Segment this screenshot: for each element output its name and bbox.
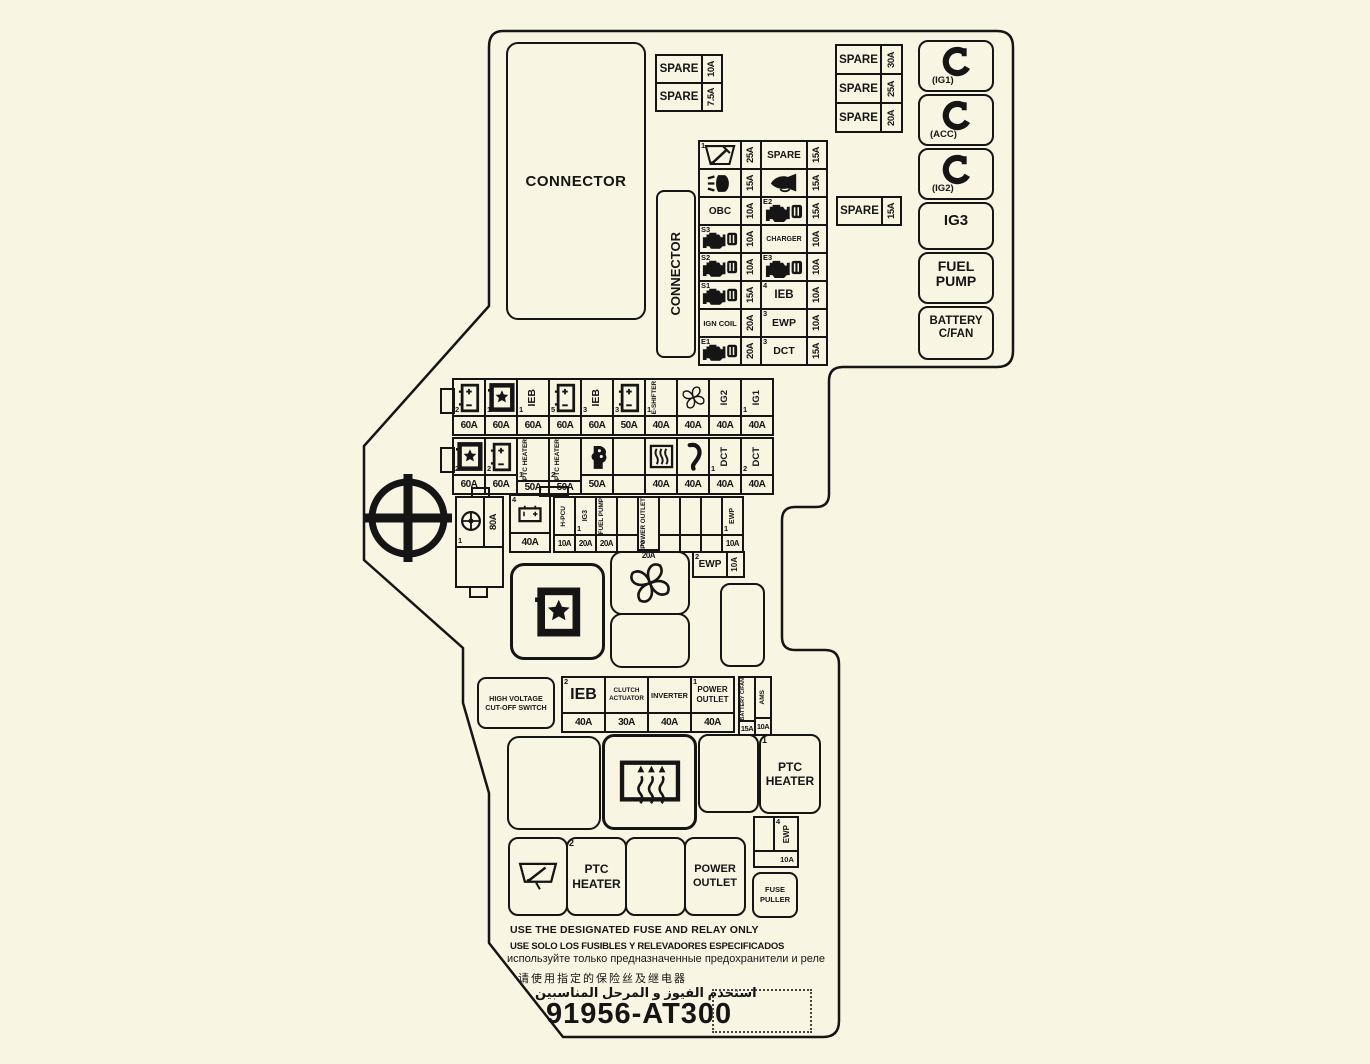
spare-amp: 15A: [881, 196, 902, 226]
spare-block-top-left: SPARE 10A SPARE 7.5A: [655, 54, 723, 112]
battery-cfan-line2: C/FAN: [939, 328, 974, 341]
battery-icon: [458, 383, 480, 413]
fuse-cell: S3: [698, 224, 742, 254]
connector-side-label: CONNECTOR: [669, 232, 683, 316]
acc-caption: (ACC): [930, 129, 957, 140]
steering-fuse-assembly: 1 80A: [455, 496, 504, 588]
spare-row: SPARE 20A: [835, 102, 903, 133]
print-area-box: [712, 989, 812, 1033]
fuse-cell: 40A: [676, 437, 710, 495]
center-grid-row: IGN COIL 20A 3 EWP 10A: [698, 308, 828, 338]
fuse-cell: 1IEB60A: [516, 378, 550, 436]
fuse-amp: 10A: [806, 308, 828, 338]
fuse-cell: 160A: [484, 378, 518, 436]
fuel-pump-line2: PUMP: [936, 274, 976, 289]
fuse-box-label: CONNECTOR CONNECTOR SPARE 10A SPARE 7.5A…: [0, 0, 1370, 1064]
fuel-pump-line1: FUEL: [938, 259, 975, 274]
fuse-cell: FUEL PUMP20A: [595, 496, 618, 553]
fuse-cell: 1IG140A: [740, 378, 774, 436]
fuse-cell: IG240A: [708, 378, 742, 436]
fuse-amp: 15A: [806, 168, 828, 198]
blower-icon: [588, 443, 607, 470]
fuse-cell: 3 EWP: [760, 308, 808, 338]
fuse-cell: CLUTCH ACTUATOR 30A: [604, 676, 649, 733]
fuse-row-2: 260A 260A 1PTC HEATER50A 2PTC HEATER50A …: [452, 437, 774, 495]
fuse-cell: 350A: [612, 378, 646, 436]
battery-positive-icon: [362, 472, 454, 564]
battery-icon: [490, 442, 512, 472]
fuse-cell: SPARE: [760, 140, 808, 170]
note-spanish: USE SOLO LOS FUSIBLES Y RELEVADORES ESPE…: [510, 941, 784, 952]
spare-label: SPARE: [836, 196, 883, 226]
headlight-icon: [706, 173, 734, 194]
fuse-cell: 50A: [580, 437, 614, 495]
heater-icon: [619, 755, 681, 809]
fuse-cell: 1POWER OUTLET 40A: [690, 676, 735, 733]
battery-star-icon: [456, 441, 483, 472]
center-grid-row: S2 10A E3 10A: [698, 252, 828, 282]
battery-icon: [554, 383, 576, 413]
fuse-cell-empty: [616, 496, 639, 553]
spare-label: SPARE: [655, 54, 703, 84]
fuse-cell: 1: [698, 140, 742, 170]
hv-fuse-strip: 2IEB 40A CLUTCH ACTUATOR 30A INVERTER 40…: [561, 676, 735, 733]
fan-relay: [610, 551, 690, 615]
fuse-cell: INVERTER 40A: [647, 676, 692, 733]
fuse-cell-empty: [755, 818, 775, 852]
rear-wiper-relay: [508, 837, 568, 916]
note-english: USE THE DESIGNATED FUSE AND RELAY ONLY: [510, 924, 759, 936]
center-grid-row: 15A 15A: [698, 168, 828, 198]
wiper-icon: [703, 144, 737, 167]
ig1-caption: (IG1): [932, 75, 954, 86]
battery-star-icon: [488, 382, 515, 413]
fuse-cell: 3 DCT: [760, 336, 808, 366]
spare-label: SPARE: [835, 73, 882, 104]
horn-icon: [769, 173, 799, 194]
fuse-amp: 10A: [806, 252, 828, 282]
empty-relay: [698, 734, 759, 813]
fuse-cell: 2POWER OUTLET20A: [637, 496, 660, 553]
fuse-cell: [760, 168, 808, 198]
center-grid-row: S3 10A CHARGER 10A: [698, 224, 828, 254]
fuse-amp: 10A: [806, 280, 828, 310]
fuse-cell: 4 EWP: [775, 818, 799, 852]
fuse-cell: 260A: [452, 437, 486, 495]
empty-relay: [507, 736, 601, 830]
spare-label: SPARE: [835, 102, 882, 133]
note-chinese: 请使用指定的保险丝及继电器: [518, 970, 687, 986]
battery-cfan-box: BATTERY C/FAN: [918, 306, 994, 360]
acc-box: (ACC): [918, 94, 994, 146]
fuel-pump-box: FUEL PUMP: [918, 252, 994, 304]
fan-icon: [624, 557, 676, 609]
fuse-amp: 10A: [775, 852, 799, 866]
fuse-row-1: 260A 160A 1IEB60A 560A 3IEB60A 350A 1E-S…: [452, 378, 774, 436]
fuse-cell: 1: [457, 498, 485, 548]
fuse-cell-empty: [658, 496, 681, 553]
fuse-amp: 15A: [806, 336, 828, 366]
key-icon: [940, 154, 976, 186]
hv-pair: BATTERY C/FAN 15A AMS 10A: [738, 676, 772, 736]
fuse-cell: 1IG320A: [574, 496, 597, 553]
center-grid-row: S1 15A 4 IEB 10A: [698, 280, 828, 310]
fuse-amp: 15A: [806, 140, 828, 170]
rear-wiper-icon: [517, 861, 559, 893]
fuse-cell-empty: [679, 496, 702, 553]
spare-amp: 10A: [701, 54, 723, 84]
fuse-cell: E3: [760, 252, 808, 282]
fuse-cell: 40A: [676, 378, 710, 436]
fuse-amp: 15A: [740, 168, 762, 198]
fuse-cell: 40A: [644, 437, 678, 495]
fuse-amp: 10A: [806, 224, 828, 254]
fuse-cell: 260A: [484, 437, 518, 495]
fuse-cell: 2PTC HEATER50A: [548, 437, 582, 495]
connector-top-box: CONNECTOR: [506, 42, 646, 320]
empty-relay: [610, 613, 690, 668]
fuse-cell: H-PCU10A: [553, 496, 576, 553]
fuse-cell-empty: [612, 437, 646, 495]
spare-row: SPARE 10A: [655, 54, 723, 84]
fuse-cell: E2: [760, 196, 808, 226]
battery-icon: [518, 499, 542, 529]
empty-relay: [720, 583, 765, 667]
fuse-cell-empty: [700, 496, 723, 553]
spare-label: SPARE: [835, 44, 882, 75]
fuse-cell: 1E-SHIFTER40A: [644, 378, 678, 436]
fuse-amp: 20A: [740, 336, 762, 366]
ptc-heater2-box: 2 PTC HEATER: [566, 837, 627, 916]
ig2-caption: (IG2): [932, 183, 954, 194]
fuse-amp: 10A: [740, 196, 762, 226]
battery4-fuse: 4 40A: [509, 494, 551, 553]
fuse-amp: 25A: [740, 140, 762, 170]
battery-star-relay: [510, 563, 605, 660]
fuse-amp: 20A: [740, 308, 762, 338]
ptc-heater-relay: [602, 734, 697, 830]
fuse-cell: OBC: [698, 196, 742, 226]
fuse-cell: S1: [698, 280, 742, 310]
battery-cfan-line1: BATTERY: [929, 315, 982, 328]
fuse-row-3: H-PCU10A 1IG320A FUEL PUMP20A 2POWER OUT…: [553, 496, 744, 553]
spare-mid: SPARE 15A: [836, 196, 902, 226]
spare-row: SPARE 30A: [835, 44, 903, 75]
empty-relay: [625, 837, 686, 916]
center-grid-row: 1 25A SPARE 15A: [698, 140, 828, 170]
key-icon: [940, 46, 976, 78]
ig3-label: IG3: [920, 212, 992, 229]
center-grid-row: OBC 10A E2 15A: [698, 196, 828, 226]
ewp4-fuse: 4 EWP 10A: [753, 816, 799, 868]
fan-icon: [679, 383, 708, 412]
fuse-cell: 260A: [452, 378, 486, 436]
fuse-cell: IGN COIL: [698, 308, 742, 338]
part-number: 91956-AT300: [546, 998, 732, 1031]
battery-star-icon: [535, 586, 581, 638]
fuse-cell: 2DCT40A: [740, 437, 774, 495]
note-russian: используйте только предназначенные предо…: [507, 953, 825, 965]
key-icon: [940, 100, 976, 132]
fuse-amp: 15A: [806, 196, 828, 226]
ig3-box: IG3: [918, 202, 994, 250]
fuse-cell: E1: [698, 336, 742, 366]
fuse-amp: 10A: [740, 224, 762, 254]
power-outlet-box: POWER OUTLET: [684, 837, 746, 916]
spare-block-top-right: SPARE 30A SPARE 25A SPARE 20A: [835, 44, 903, 133]
connector-side-box: CONNECTOR: [656, 190, 696, 358]
fuse-cell: 4 IEB: [760, 280, 808, 310]
fuse-cell: S2: [698, 252, 742, 282]
fuse-cell: [698, 168, 742, 198]
connector-top-label: CONNECTOR: [526, 173, 627, 190]
fuse-amp: 10A: [740, 252, 762, 282]
fuse-cell: 1DCT40A: [708, 437, 742, 495]
fuse-cell: CHARGER: [760, 224, 808, 254]
fuse-cell: 3IEB60A: [580, 378, 614, 436]
hose-icon: [685, 442, 702, 471]
fuse-cell: 2IEB 40A: [561, 676, 606, 733]
spare-amp: 25A: [880, 73, 903, 104]
ewp2-fuse: 2 EWP 10A: [692, 551, 745, 578]
fuse-cell: AMS 10A: [754, 676, 772, 736]
fuse-cell: 1PTC HEATER50A: [516, 437, 550, 495]
ig2-box: (IG2): [918, 148, 994, 200]
spare-row: SPARE 7.5A: [655, 82, 723, 112]
fuse-puller-box: FUSE PULLER: [752, 872, 798, 918]
steering-circle-icon: [460, 510, 482, 532]
fuse-amp: 15A: [740, 280, 762, 310]
spare-amp: 30A: [880, 44, 903, 75]
fuse-cell: 560A: [548, 378, 582, 436]
ig1-box: (IG1): [918, 40, 994, 92]
ptc-heater1-box: 1 PTC HEATER: [759, 734, 821, 814]
spare-amp: 7.5A: [701, 82, 723, 112]
spare-amp: 20A: [880, 102, 903, 133]
spare-row: SPARE 25A: [835, 73, 903, 104]
spare-row: SPARE 15A: [836, 196, 902, 226]
center-grid-row: E1 20A 3 DCT 15A: [698, 336, 828, 366]
hv-cutoff-switch-box: HIGH VOLTAGE CUT-OFF SWITCH: [477, 677, 555, 729]
spare-label: SPARE: [655, 82, 703, 112]
fuse-amp: 80A: [485, 498, 502, 548]
defroster-icon: [649, 444, 674, 469]
battery-icon: [618, 383, 640, 413]
fuse-cell: 1EWP10A: [721, 496, 744, 553]
